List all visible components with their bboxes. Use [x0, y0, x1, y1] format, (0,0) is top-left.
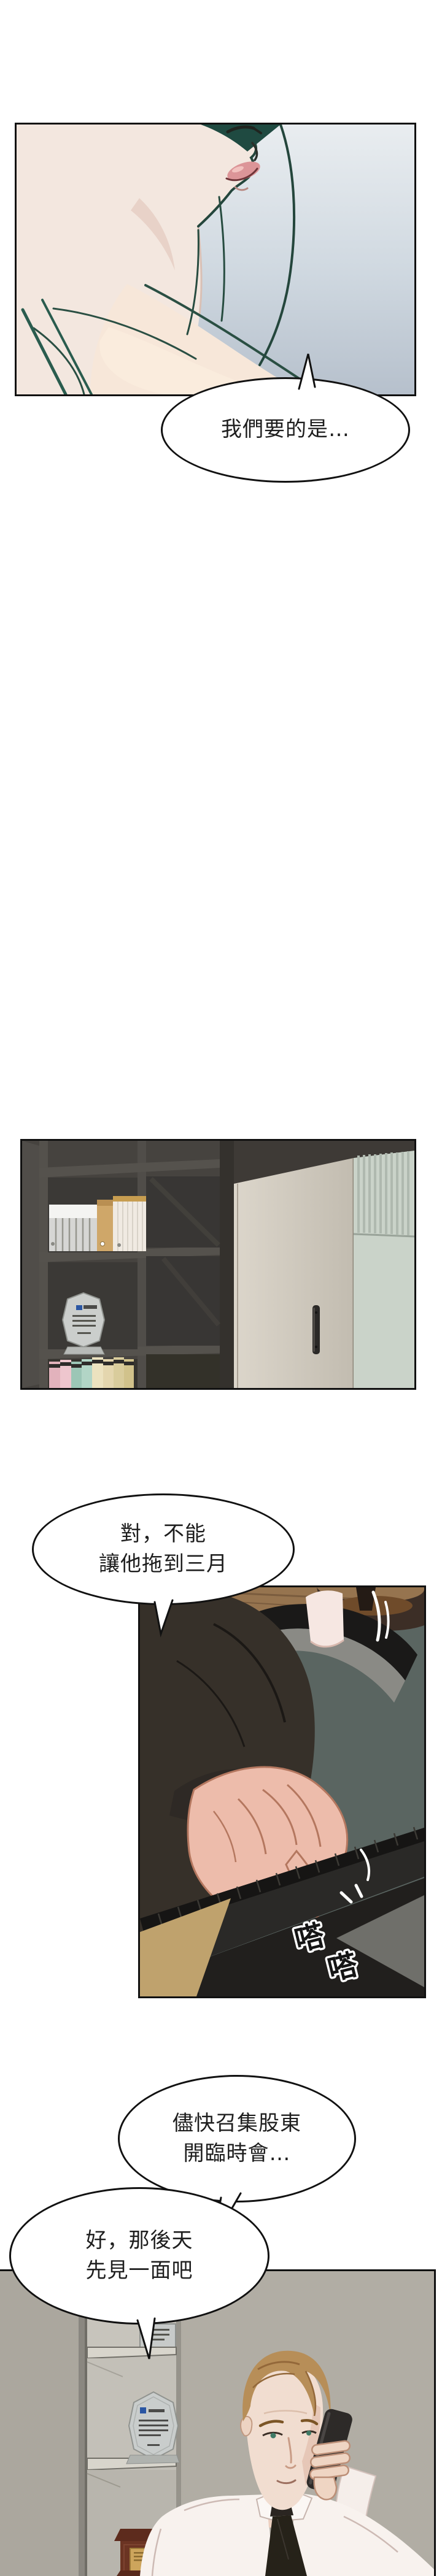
ear	[241, 2417, 252, 2436]
bubble-tail	[123, 2306, 172, 2367]
comic-page: 嗒 嗒	[0, 0, 442, 2576]
panel-office-room	[20, 1139, 416, 1390]
bubble-text: 先見一面吧	[86, 2256, 193, 2286]
door-handle	[312, 1305, 320, 1354]
bubble-text: 對，不能	[120, 1519, 206, 1549]
bubble-tail	[289, 343, 331, 399]
bubble-tail	[141, 1585, 190, 1644]
bubble-text: 儘快召集股東	[173, 2109, 301, 2139]
speech-bubble-4: 好，那後天 先見一面吧	[9, 2187, 269, 2325]
panel-typing-hand: 嗒 嗒	[138, 1585, 426, 1998]
colored-books	[49, 1357, 134, 1388]
bubble-text: 好，那後天	[86, 2226, 193, 2256]
panel-woman-closeup	[15, 123, 416, 396]
speech-bubble-1: 我們要的是…	[161, 377, 410, 483]
bubble-text: 讓他拖到三月	[99, 1549, 228, 1579]
side-wall-blinds	[354, 1151, 414, 1388]
bubble-text: 我們要的是…	[221, 415, 350, 445]
bookshelf	[22, 1141, 234, 1388]
panel-man-on-phone	[0, 2269, 436, 2576]
bubble-text: 開臨時會…	[184, 2139, 291, 2169]
